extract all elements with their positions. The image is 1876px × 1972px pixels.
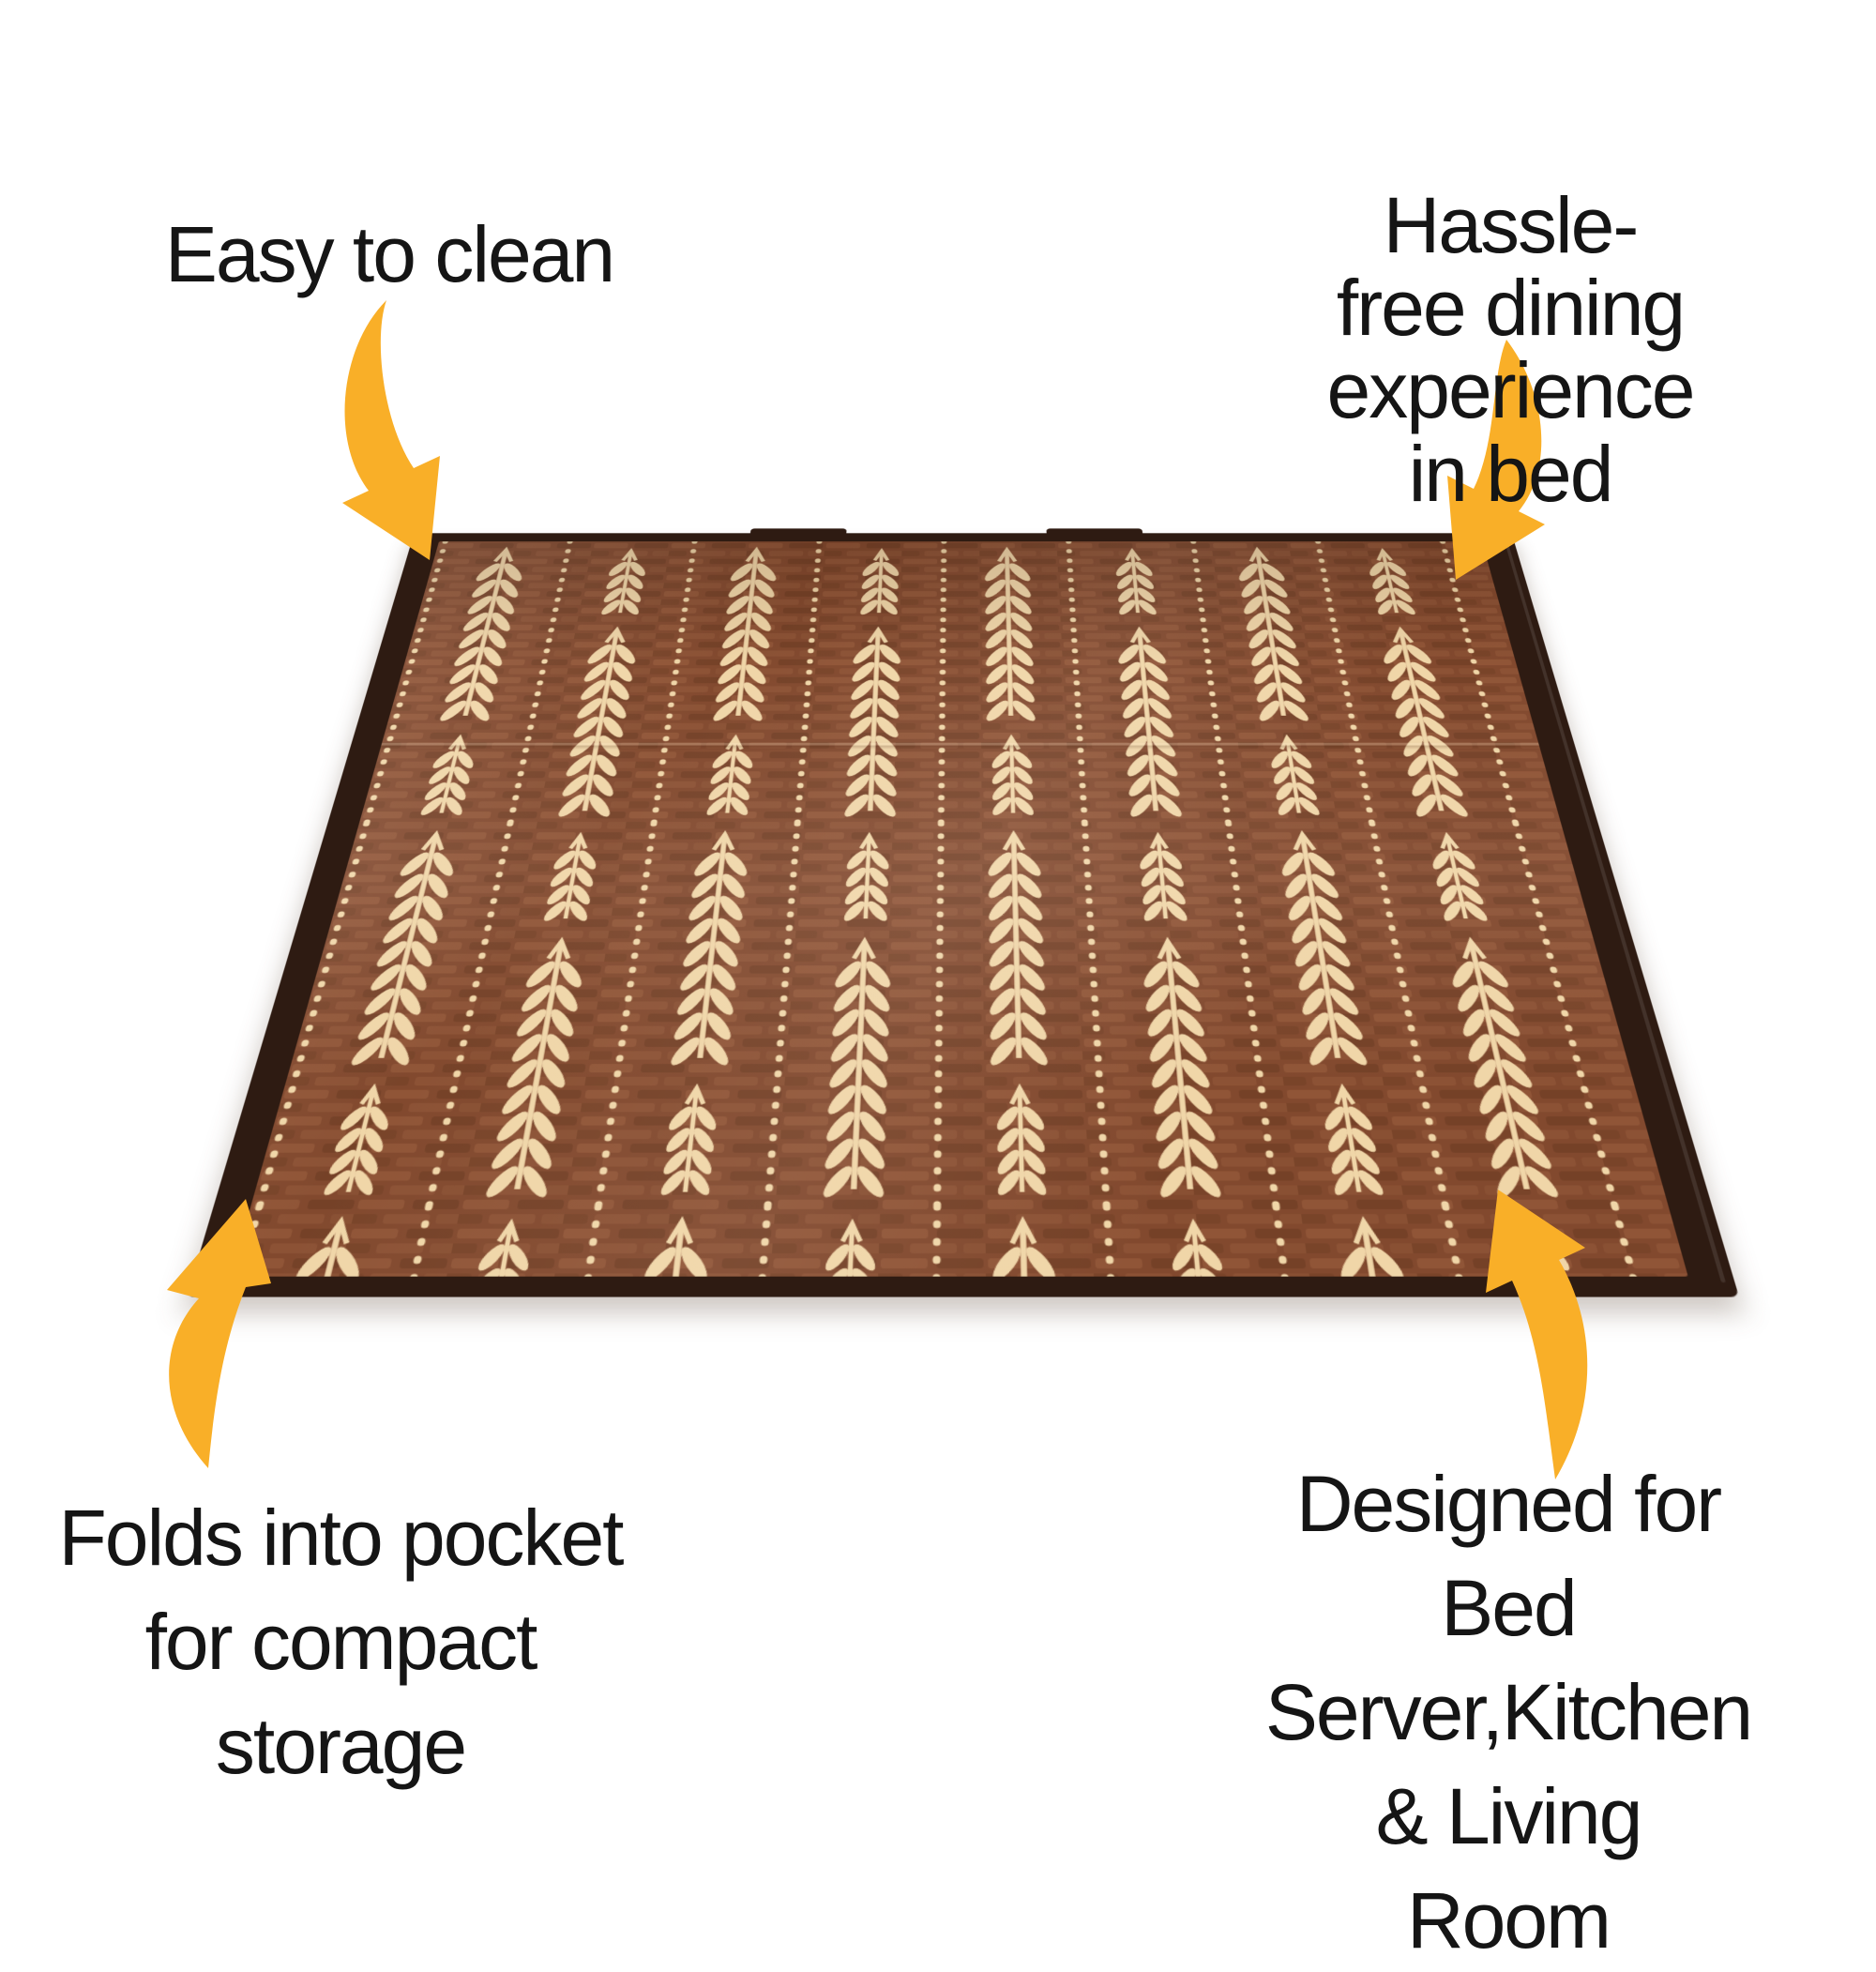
callout-folds-into-pocket: Folds into pocket for compact storage — [58, 1486, 622, 1798]
mat-binding-tab — [749, 528, 846, 537]
mat-printed-surface — [231, 541, 1688, 1277]
callout-easy-to-clean: Easy to clean — [165, 213, 613, 296]
callout-designed-for-rooms: Designed for Bed Server,Kitchen & Living… — [1265, 1452, 1751, 1972]
mat-binding-tab — [1046, 528, 1142, 537]
bed-server-mat-photo — [187, 533, 1739, 1297]
callout-hassle-free-dining: Hassle-free dining experience in bed — [1327, 184, 1694, 515]
product-annotation-image: Easy to clean Hassle-free dining experie… — [0, 0, 1876, 1876]
curved-arrow-top-left — [342, 300, 440, 560]
mat-sheen-highlight — [231, 541, 1688, 1277]
